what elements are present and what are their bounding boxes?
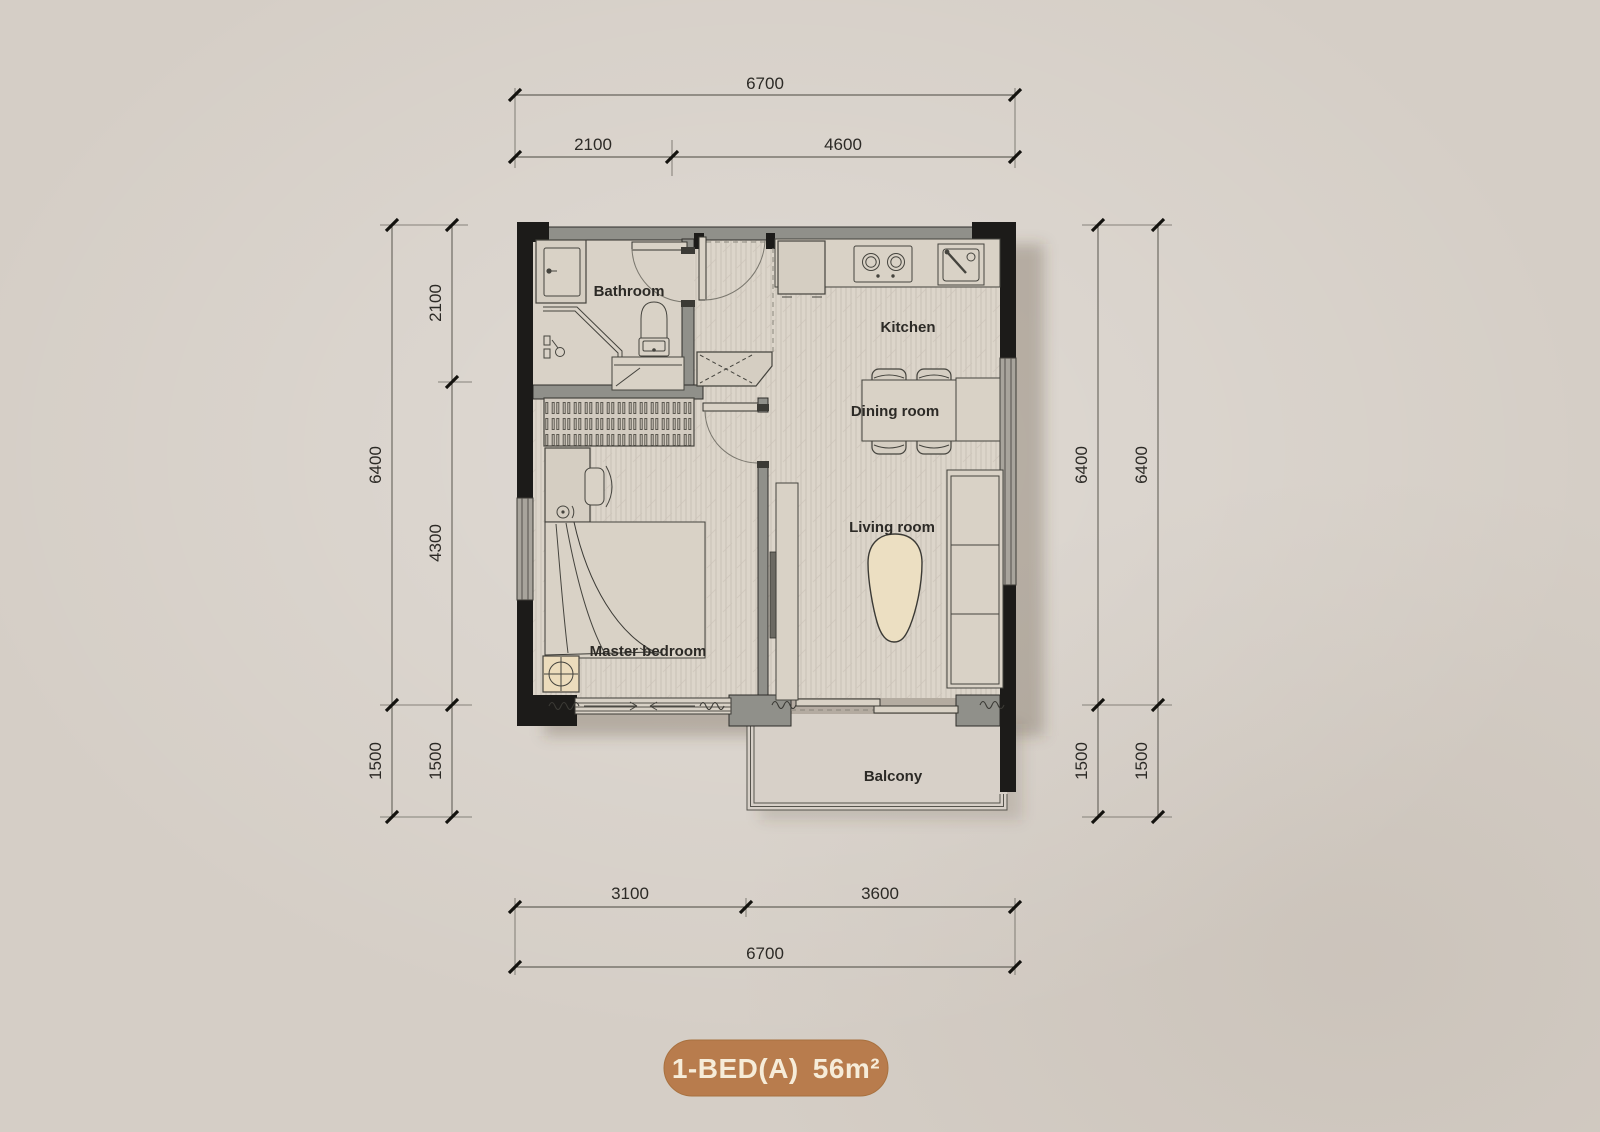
dim-left-inner-low: 1500 xyxy=(426,742,445,780)
dim-bottom: 3100 3600 6700 xyxy=(509,884,1021,975)
left-wall-window xyxy=(517,498,533,600)
floor-plan-page: Bathroom Kitchen Dining room Living room… xyxy=(0,0,1600,1132)
bed xyxy=(545,522,705,658)
wardrobe xyxy=(544,398,694,446)
dim-left-inner-seg1: 2100 xyxy=(426,284,445,322)
unit-type: 1-BED(A) xyxy=(672,1053,799,1084)
dim-left-outer-low: 1500 xyxy=(366,742,385,780)
label-living: Living room xyxy=(849,519,935,536)
label-dining: Dining room xyxy=(851,403,939,420)
dim-top-overall: 6700 xyxy=(746,74,784,93)
tv-screen xyxy=(770,552,776,638)
stove xyxy=(854,246,912,282)
washer-bench xyxy=(612,357,684,390)
sofa xyxy=(947,470,1003,688)
toilet xyxy=(639,302,669,356)
label-kitchen: Kitchen xyxy=(880,319,935,336)
unit-area: 56m² xyxy=(813,1053,880,1084)
dim-bottom-overall: 6700 xyxy=(746,944,784,963)
fridge xyxy=(778,241,825,297)
label-bathroom: Bathroom xyxy=(594,283,665,300)
sideboard xyxy=(956,378,1000,441)
floor-plan-canvas: Bathroom Kitchen Dining room Living room… xyxy=(0,0,1600,1132)
dim-top-seg2: 4600 xyxy=(824,135,862,154)
kitchen-sink xyxy=(938,244,984,285)
bathroom-vanity xyxy=(536,240,586,303)
dim-left-outer-main: 6400 xyxy=(366,446,385,484)
area-badge: 1-BED(A)56m² xyxy=(664,1040,888,1096)
dim-right-far-main: 6400 xyxy=(1132,446,1151,484)
dim-top-seg1: 2100 xyxy=(574,135,612,154)
dim-bottom-seg2: 3600 xyxy=(861,884,899,903)
desk xyxy=(545,448,590,522)
dim-right-far-low: 1500 xyxy=(1132,742,1151,780)
bedroom-window xyxy=(549,698,731,714)
label-balcony: Balcony xyxy=(864,768,923,785)
dim-left-inner-seg2: 4300 xyxy=(426,524,445,562)
nightstand-lamp xyxy=(543,656,579,692)
dim-right-near-low: 1500 xyxy=(1072,742,1091,780)
dim-top: 6700 2100 4600 xyxy=(509,74,1021,176)
dim-right-near-main: 6400 xyxy=(1072,446,1091,484)
dim-right: 6400 1500 6400 1500 xyxy=(1072,219,1172,823)
area-badge-text: 1-BED(A)56m² xyxy=(672,1053,880,1084)
dim-bottom-seg1: 3100 xyxy=(611,884,649,903)
dim-left: 6400 1500 2100 4300 1500 xyxy=(366,219,472,823)
balcony-floor xyxy=(747,714,1007,810)
shoe-cabinet xyxy=(697,352,772,386)
label-bedroom: Master bedroom xyxy=(590,643,707,660)
